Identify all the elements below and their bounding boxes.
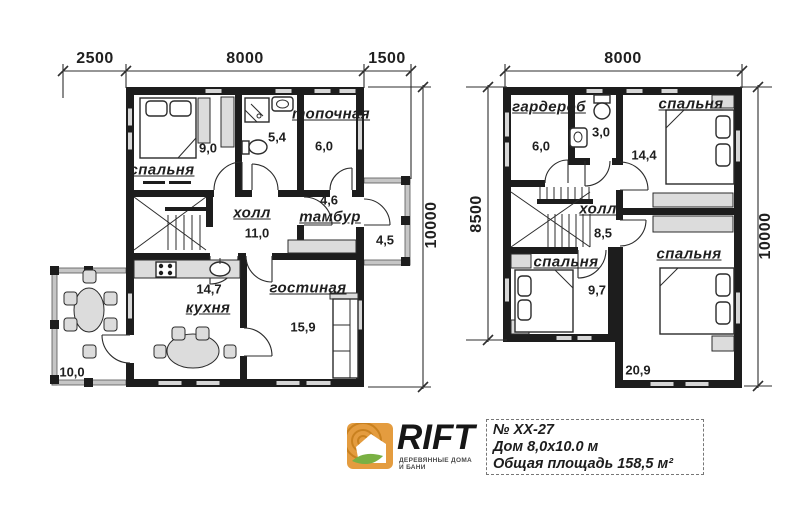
area-bedroom1-f2: 14,4 [631,148,656,163]
company-logo: RIFT ДЕРЕВЯННЫЕ ДОМА И БАНИ [347,420,477,476]
dim-8000-floor2: 8000 [604,50,642,68]
dim-1500: 1500 [368,50,406,68]
area-hall-f1: 11,0 [245,226,270,241]
area-porch: 4,5 [376,233,394,248]
area-hall-f2: 8,5 [594,226,612,241]
brand-name: RIFT [397,418,475,458]
dim-8000-floor1: 8000 [226,50,264,68]
room-label-bedroom1-f2: спальня [659,96,724,113]
area-bedroom-f1: 9,0 [199,141,217,156]
logo-icon [347,423,393,469]
total-area: Общая площадь 158,5 м² [493,456,697,473]
dim-10000-floor2: 10000 [757,213,775,260]
room-label-bedroom2-f2: спальня [534,254,599,271]
floor1-bathroom-fixtures [242,97,293,154]
floorplan-canvas: 2500 8000 1500 10000 спальня 9,0 5,4 топ… [0,0,802,513]
room-label-wardrobe: гардероб [512,99,586,116]
area-vestibule: 4,6 [320,193,338,208]
area-terrace: 10,0 [59,365,84,380]
area-bedroom2-f2: 9,7 [588,283,606,298]
project-info-box: № ХХ-27 Дом 8,0х10.0 м Общая площадь 158… [486,419,704,475]
floor1-stairs [134,197,207,250]
room-label-boiler: топочная [292,106,370,123]
porch-structure [364,176,410,266]
living-room-furniture [330,293,358,378]
area-bedroom3-f2: 20,9 [625,363,650,378]
dim-2500: 2500 [76,50,114,68]
floor1-plan [50,64,431,392]
dim-8500: 8500 [468,195,486,233]
bedroom3-furniture [660,268,734,351]
house-size: Дом 8,0х10.0 м [493,439,697,456]
area-bathroom-f1: 5,4 [268,130,286,145]
area-wardrobe: 6,0 [532,139,550,154]
area-boiler: 6,0 [315,139,333,154]
dim-10000-floor1: 10000 [423,202,441,249]
terrace-furniture [64,270,117,358]
room-label-bedroom3-f2: спальня [657,246,722,263]
room-label-living: гостиная [269,280,346,297]
room-label-hall-f1: холл [233,205,270,222]
room-label-kitchen: кухня [186,300,231,317]
project-number: № ХХ-27 [493,422,697,439]
area-bathroom-f2: 3,0 [592,125,610,140]
room-label-hall-f2: холл [579,201,616,218]
area-living: 15,9 [290,320,315,335]
terrace-door-opening [126,335,134,363]
room-label-vestibule: тамбур [299,209,361,226]
room-label-bedroom-f1: спальня [130,162,195,179]
brand-tagline: ДЕРЕВЯННЫЕ ДОМА И БАНИ [399,457,477,471]
area-kitchen: 14,7 [196,282,221,297]
